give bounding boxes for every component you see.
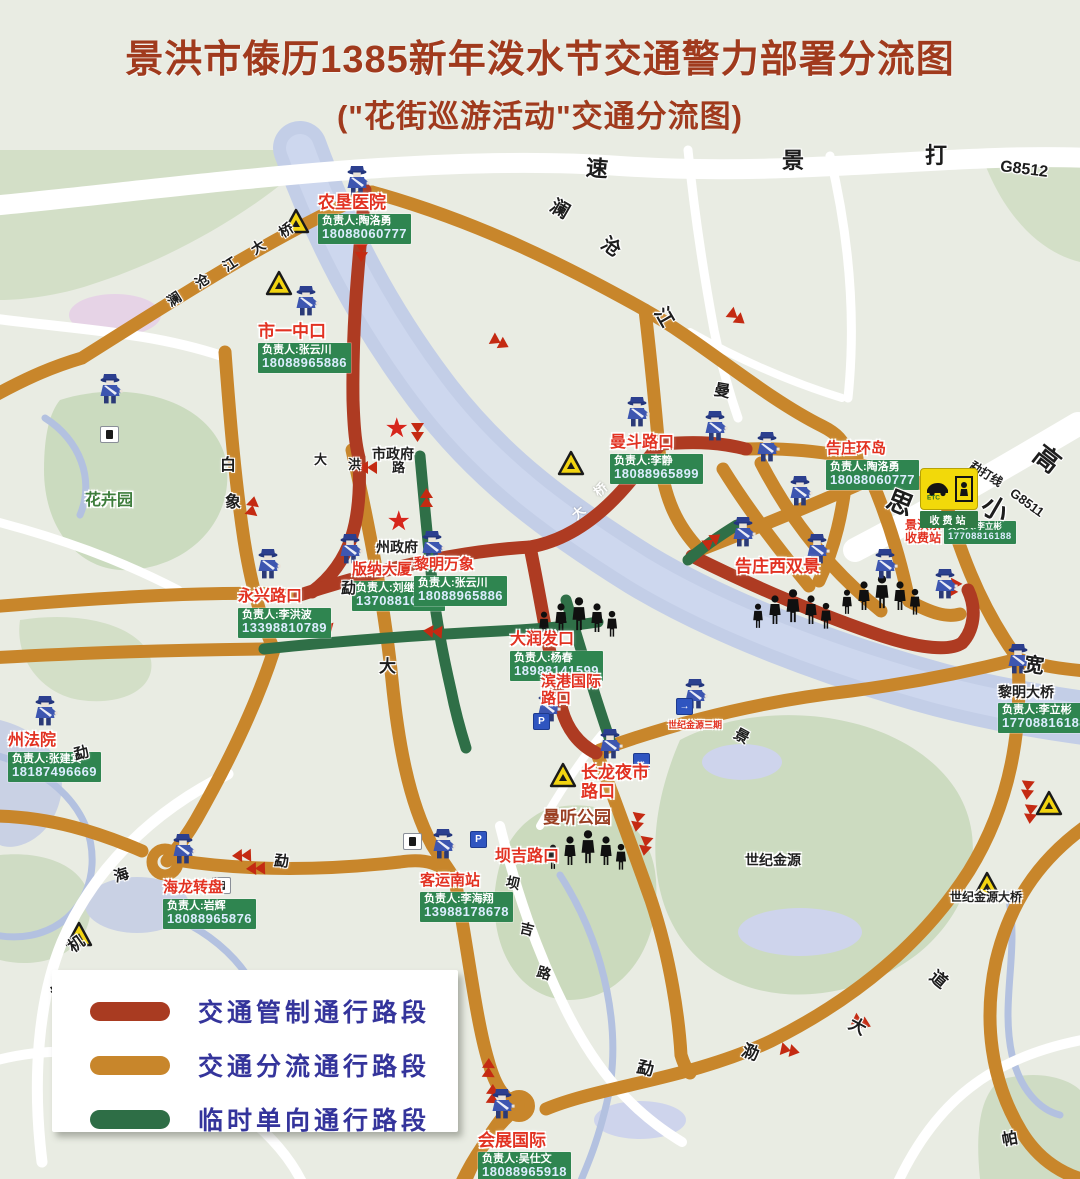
toll-sign-panel: ETC [920, 468, 978, 510]
car-icon: ETC [925, 478, 951, 500]
toll-bar-label: 收费站 [920, 511, 978, 528]
toll-booth-icon [955, 476, 973, 502]
direction-arrow-icon [411, 423, 424, 442]
map-page: 景洪市傣历1385新年泼水节交通警力部署分流图 ("花街巡游活动"交通分流图) … [0, 0, 1080, 1179]
legend: 交通管制通行路段 交通分流通行路段 临时单向通行路段 [52, 970, 458, 1132]
traffic-info-sign-icon: P [533, 713, 550, 730]
svg-text:ETC: ETC [927, 495, 940, 501]
direction-arrow-icon [726, 307, 749, 329]
gas-pump-glyph [106, 430, 113, 439]
police-officer-icon [259, 549, 281, 578]
traffic-info-sign-icon: → [676, 698, 693, 715]
direction-arrow-icon [780, 1042, 801, 1059]
gas-pump-glyph [218, 881, 225, 890]
legend-row-divert: 交通分流通行路段 [52, 1038, 458, 1092]
warning-triangle-icon [559, 452, 583, 474]
crowd-icon [607, 611, 617, 637]
police-officer-icon [297, 286, 319, 315]
legend-bar-control [90, 1002, 170, 1021]
legend-bar-oneway [90, 1110, 170, 1129]
map-title: 景洪市傣历1385新年泼水节交通警力部署分流图 ("花街巡游活动"交通分流图) [0, 28, 1080, 136]
police-officer-icon [36, 696, 58, 725]
direction-arrow-icon [312, 618, 334, 635]
traffic-info-sign-icon: P [470, 831, 487, 848]
direction-arrow-icon [1023, 804, 1038, 824]
service-sign-icon [212, 877, 231, 894]
direction-arrow-icon [245, 495, 261, 516]
legend-row-control: 交通管制通行路段 [52, 970, 458, 1038]
direction-arrow-icon [489, 332, 512, 352]
police-officer-icon [628, 397, 650, 426]
direction-arrow-icon [1020, 780, 1035, 800]
traffic-info-sign-icon: → [633, 753, 650, 770]
warning-triangle-icon [1037, 792, 1061, 814]
service-sign-icon [100, 426, 119, 443]
legend-label-control: 交通管制通行路段 [198, 993, 430, 1029]
legend-bar-divert [90, 1056, 170, 1075]
legend-row-oneway: 临时单向通行路段 [52, 1092, 458, 1146]
police-officer-icon [706, 411, 728, 440]
toll-station-sign: ETC 收费站 [920, 468, 978, 528]
warning-triangle-icon [267, 272, 291, 294]
gas-pump-glyph [409, 837, 416, 846]
warning-triangle-icon [975, 873, 999, 895]
title-line-1: 景洪市傣历1385新年泼水节交通警力部署分流图 [0, 28, 1080, 83]
police-officer-icon [1009, 644, 1031, 673]
legend-label-oneway: 临时单向通行路段 [198, 1101, 430, 1137]
legend-label-divert: 交通分流通行路段 [198, 1047, 430, 1083]
service-sign-icon [403, 833, 422, 850]
title-line-2: ("花街巡游活动"交通分流图) [0, 91, 1080, 136]
crowd-icon [842, 590, 852, 614]
direction-arrow-icon [851, 1013, 874, 1033]
